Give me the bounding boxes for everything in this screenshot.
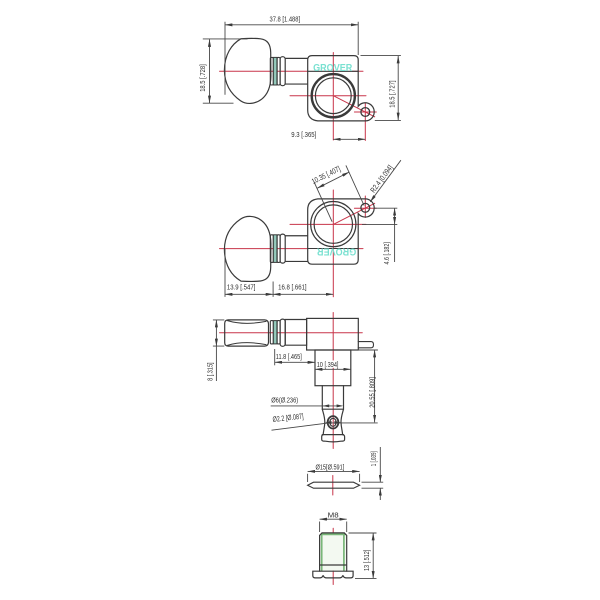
svg-text:18.5 [.728]: 18.5 [.728] <box>198 64 207 92</box>
svg-text:18.5 [.727]: 18.5 [.727] <box>387 81 396 108</box>
svg-text:M8: M8 <box>328 511 339 520</box>
svg-text:11.8 [.465]: 11.8 [.465] <box>276 352 302 361</box>
svg-text:GROVER: GROVER <box>317 246 356 257</box>
svg-text:20.55 [.809]: 20.55 [.809] <box>367 377 376 408</box>
svg-text:4.6 [.182]: 4.6 [.182] <box>382 242 391 264</box>
svg-text:10 [.394]: 10 [.394] <box>317 360 339 369</box>
svg-text:13 [.512]: 13 [.512] <box>362 550 371 571</box>
svg-text:16.8 [.661]: 16.8 [.661] <box>278 282 307 291</box>
svg-text:GROVER: GROVER <box>313 63 352 74</box>
svg-text:13.9 [.547]: 13.9 [.547] <box>227 282 256 291</box>
svg-text:1 [.039]: 1 [.039] <box>369 451 378 466</box>
svg-text:9.3 [.365]: 9.3 [.365] <box>291 130 316 139</box>
svg-text:Ø15[Ø.591]: Ø15[Ø.591] <box>316 462 345 471</box>
svg-text:8 [.315]: 8 [.315] <box>205 362 214 381</box>
svg-text:37.8 [1.488]: 37.8 [1.488] <box>270 14 301 23</box>
svg-text:Ø6(Ø.236): Ø6(Ø.236) <box>271 395 298 404</box>
